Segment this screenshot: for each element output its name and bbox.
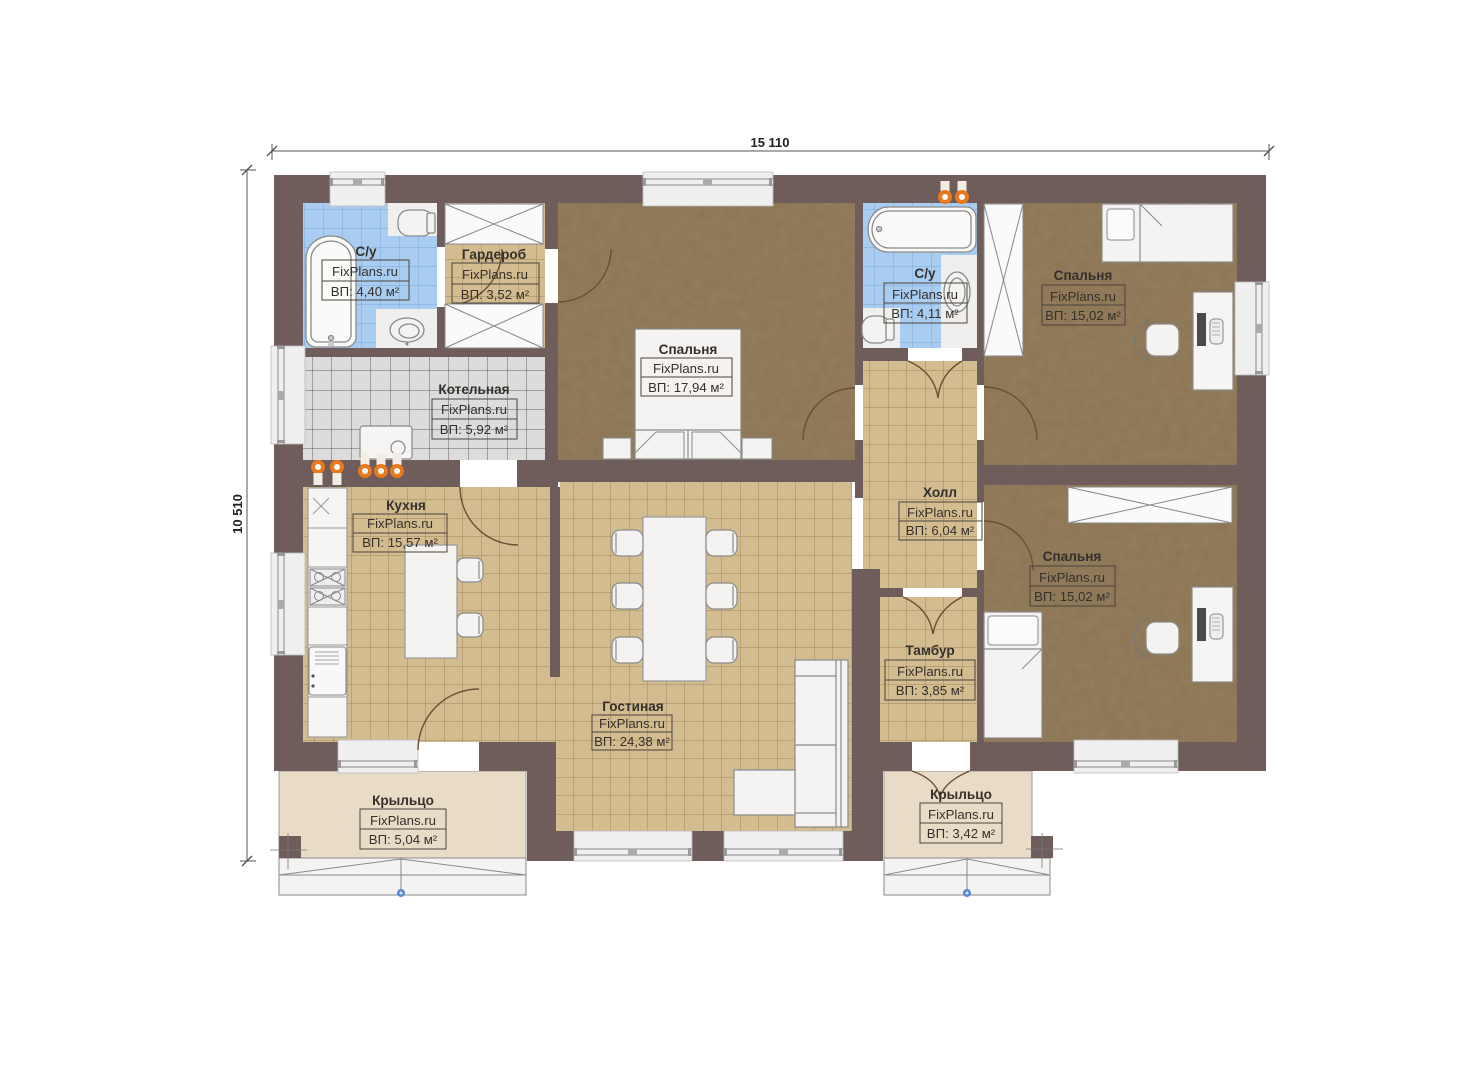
svg-text:ВП: 5,92 м²: ВП: 5,92 м² — [440, 422, 509, 437]
svg-text:Крыльцо: Крыльцо — [930, 787, 992, 802]
svg-text:FixPlans.ru: FixPlans.ru — [897, 664, 963, 679]
svg-text:ВП: 4,40 м²: ВП: 4,40 м² — [331, 284, 400, 299]
svg-text:Спальня: Спальня — [1043, 549, 1102, 564]
svg-text:Кухня: Кухня — [386, 498, 426, 513]
svg-text:FixPlans.ru: FixPlans.ru — [332, 264, 398, 279]
svg-text:Котельная: Котельная — [438, 382, 509, 397]
svg-text:ВП: 17,94 м²: ВП: 17,94 м² — [648, 380, 724, 395]
svg-text:Тамбур: Тамбур — [905, 643, 954, 658]
svg-text:ВП: 15,57 м²: ВП: 15,57 м² — [362, 535, 438, 550]
svg-text:ВП: 15,02 м²: ВП: 15,02 м² — [1034, 589, 1110, 604]
svg-text:Спальня: Спальня — [659, 342, 718, 357]
svg-text:FixPlans.ru: FixPlans.ru — [370, 813, 436, 828]
svg-text:ВП: 6,04 м²: ВП: 6,04 м² — [906, 523, 975, 538]
svg-text:15 110: 15 110 — [750, 135, 789, 150]
svg-text:Холл: Холл — [923, 485, 957, 500]
svg-text:Крыльцо: Крыльцо — [372, 793, 434, 808]
svg-text:FixPlans.ru: FixPlans.ru — [928, 807, 994, 822]
svg-text:10 510: 10 510 — [230, 494, 245, 534]
svg-text:FixPlans.ru: FixPlans.ru — [441, 402, 507, 417]
svg-text:С/у: С/у — [914, 266, 936, 281]
svg-text:Гостиная: Гостиная — [602, 699, 663, 714]
svg-text:FixPlans.ru: FixPlans.ru — [907, 505, 973, 520]
svg-text:FixPlans.ru: FixPlans.ru — [599, 716, 665, 731]
svg-text:FixPlans.ru: FixPlans.ru — [462, 267, 528, 282]
svg-text:FixPlans.ru: FixPlans.ru — [892, 287, 958, 302]
svg-text:ВП: 3,52 м²: ВП: 3,52 м² — [461, 287, 530, 302]
svg-text:FixPlans.ru: FixPlans.ru — [1039, 570, 1105, 585]
svg-text:ВП: 5,04 м²: ВП: 5,04 м² — [369, 832, 438, 847]
svg-text:FixPlans.ru: FixPlans.ru — [367, 516, 433, 531]
svg-text:ВП: 24,38 м²: ВП: 24,38 м² — [594, 734, 670, 749]
svg-text:ВП: 4,11 м²: ВП: 4,11 м² — [891, 306, 959, 321]
svg-text:Спальня: Спальня — [1054, 268, 1113, 283]
svg-text:FixPlans.ru: FixPlans.ru — [653, 361, 719, 376]
svg-text:С/у: С/у — [355, 244, 377, 259]
svg-text:FixPlans.ru: FixPlans.ru — [1050, 289, 1116, 304]
svg-text:ВП: 15,02 м²: ВП: 15,02 м² — [1045, 308, 1121, 323]
svg-text:ВП: 3,42 м²: ВП: 3,42 м² — [927, 826, 996, 841]
svg-text:ВП: 3,85 м²: ВП: 3,85 м² — [896, 683, 965, 698]
svg-text:Гардероб: Гардероб — [462, 247, 526, 262]
